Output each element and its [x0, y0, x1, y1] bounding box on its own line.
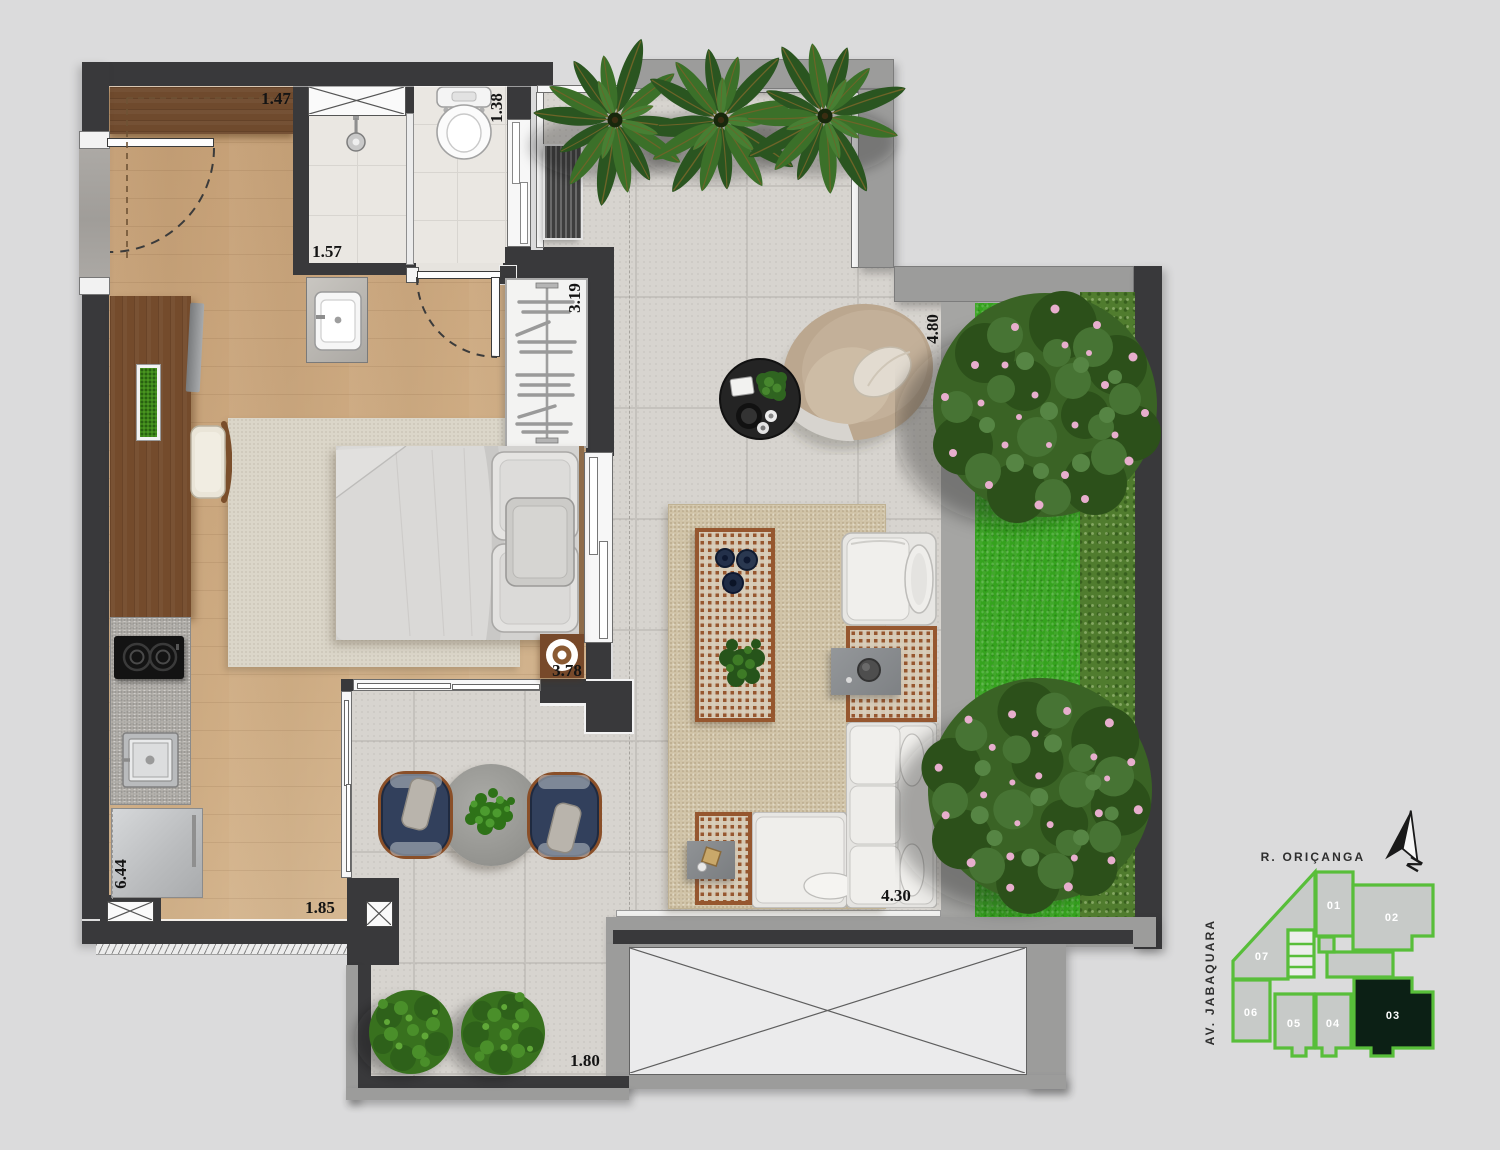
svg-text:07: 07	[1255, 951, 1269, 963]
svg-text:03: 03	[1386, 1010, 1400, 1022]
svg-text:01: 01	[1327, 900, 1341, 912]
svg-text:04: 04	[1326, 1018, 1340, 1030]
svg-text:06: 06	[1244, 1007, 1258, 1019]
svg-text:05: 05	[1287, 1018, 1301, 1030]
svg-text:02: 02	[1385, 912, 1399, 924]
